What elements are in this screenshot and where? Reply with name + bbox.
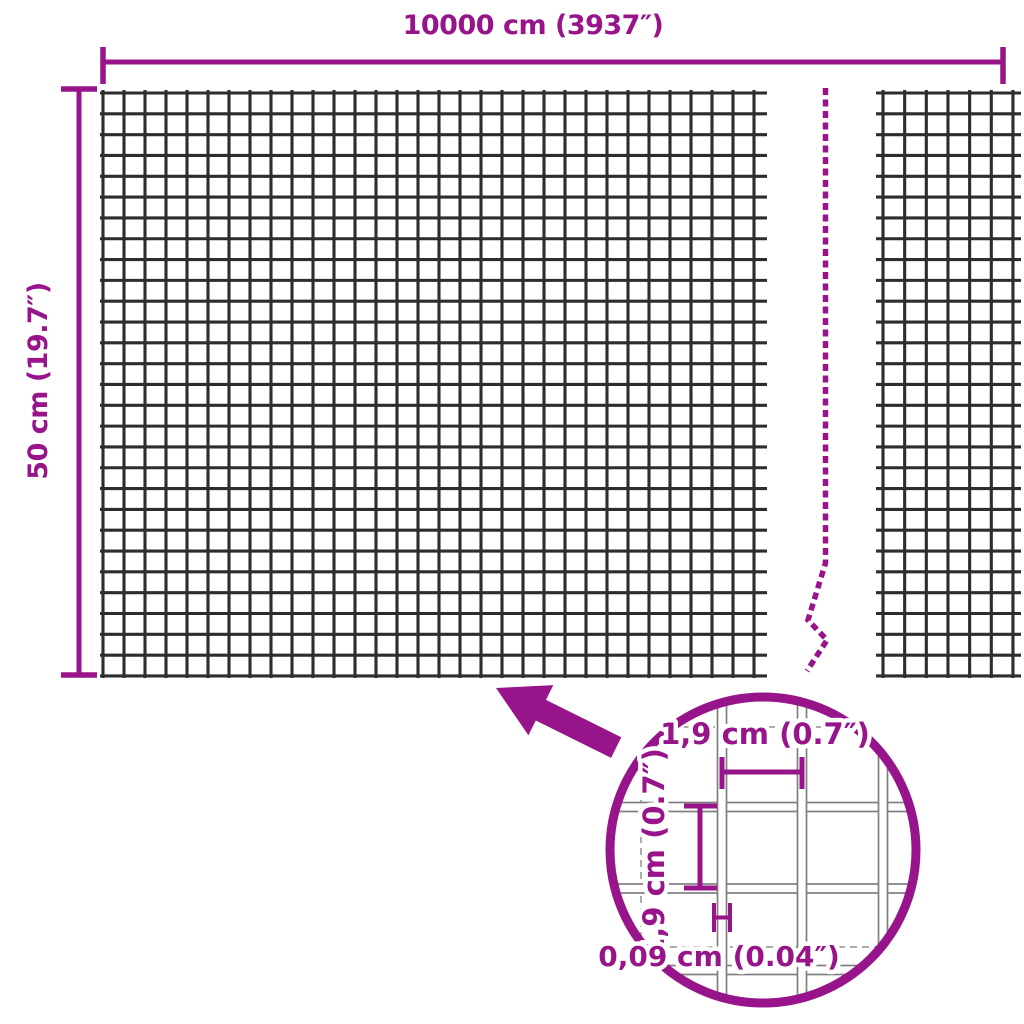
- mesh-height-label: 1,9 cm (0.7″): [637, 748, 671, 958]
- mesh-width-bracket: [722, 757, 802, 789]
- mesh-height-bracket: [684, 806, 717, 888]
- diagram-canvas: 10000 cm (3937″) 50 cm (19.7″): [0, 0, 1024, 1024]
- height-dimension-label: 50 cm (19.7″): [23, 282, 54, 479]
- mesh-continuation: [876, 90, 1021, 678]
- mesh-main: [100, 90, 767, 678]
- break-line: [807, 88, 827, 671]
- width-dimension-label: 10000 cm (3937″): [403, 10, 664, 41]
- wire-thickness-label: 0,09 cm (0.04″): [598, 940, 840, 973]
- zoom-wire-vertical-3: [879, 686, 888, 1016]
- product-dimension-diagram: 10000 cm (3937″) 50 cm (19.7″): [0, 0, 1024, 1024]
- height-dimension: 50 cm (19.7″): [23, 89, 97, 675]
- callout-arrow: [496, 685, 621, 758]
- mesh-width-label: 1,9 cm (0.7″): [660, 717, 870, 751]
- width-dimension: 10000 cm (3937″): [103, 10, 1003, 84]
